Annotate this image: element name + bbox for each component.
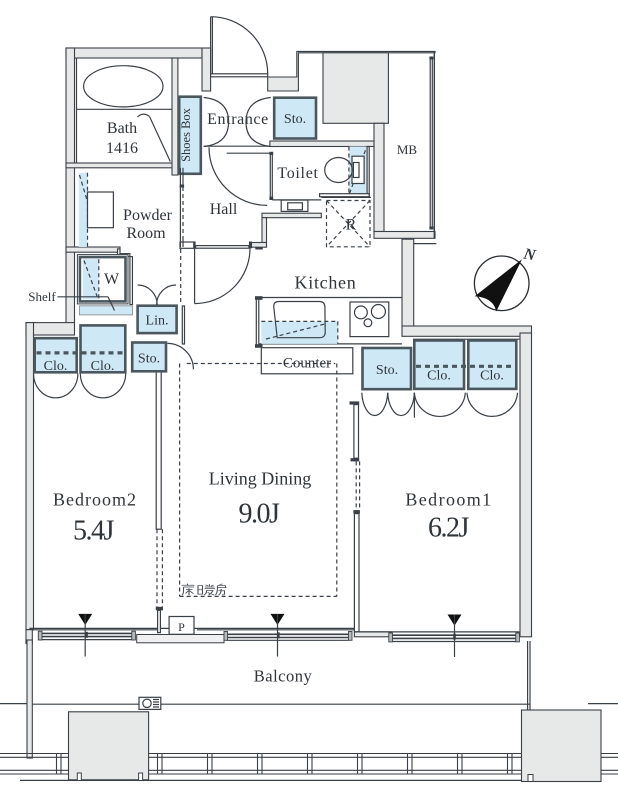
svg-text:Bedroom1: Bedroom1	[405, 490, 492, 510]
svg-text:Clo.: Clo.	[44, 359, 68, 374]
svg-text:Clo.: Clo.	[480, 369, 504, 384]
svg-text:Living Dining: Living Dining	[209, 469, 312, 489]
svg-text:5.4J: 5.4J	[73, 516, 115, 547]
svg-text:MB: MB	[397, 142, 418, 157]
svg-text:R: R	[346, 217, 357, 234]
svg-text:Sto.: Sto.	[284, 112, 306, 127]
svg-text:Sto.: Sto.	[138, 352, 160, 367]
svg-text:Hall: Hall	[210, 201, 238, 218]
svg-text:Powder: Powder	[123, 207, 173, 224]
svg-text:Clo.: Clo.	[91, 359, 115, 374]
svg-text:6.2J: 6.2J	[428, 513, 470, 544]
svg-text:Entrance: Entrance	[207, 111, 269, 128]
svg-text:P: P	[178, 620, 185, 634]
svg-text:Balcony: Balcony	[254, 667, 313, 686]
svg-text:W: W	[104, 271, 120, 288]
svg-text:Bedroom2: Bedroom2	[53, 490, 137, 510]
svg-text:Lin.: Lin.	[146, 314, 169, 329]
svg-text:Bath: Bath	[107, 120, 137, 137]
svg-text:Toilet: Toilet	[277, 165, 318, 182]
svg-text:9.0J: 9.0J	[239, 499, 281, 530]
svg-text:Room: Room	[126, 225, 166, 242]
svg-text:Kitchen: Kitchen	[295, 273, 357, 293]
svg-text:Sto.: Sto.	[376, 363, 398, 378]
svg-text:Clo.: Clo.	[427, 369, 451, 384]
svg-text:Shoes Box: Shoes Box	[179, 107, 193, 162]
svg-text:1416: 1416	[106, 140, 138, 157]
svg-text:Shelf: Shelf	[28, 289, 56, 304]
